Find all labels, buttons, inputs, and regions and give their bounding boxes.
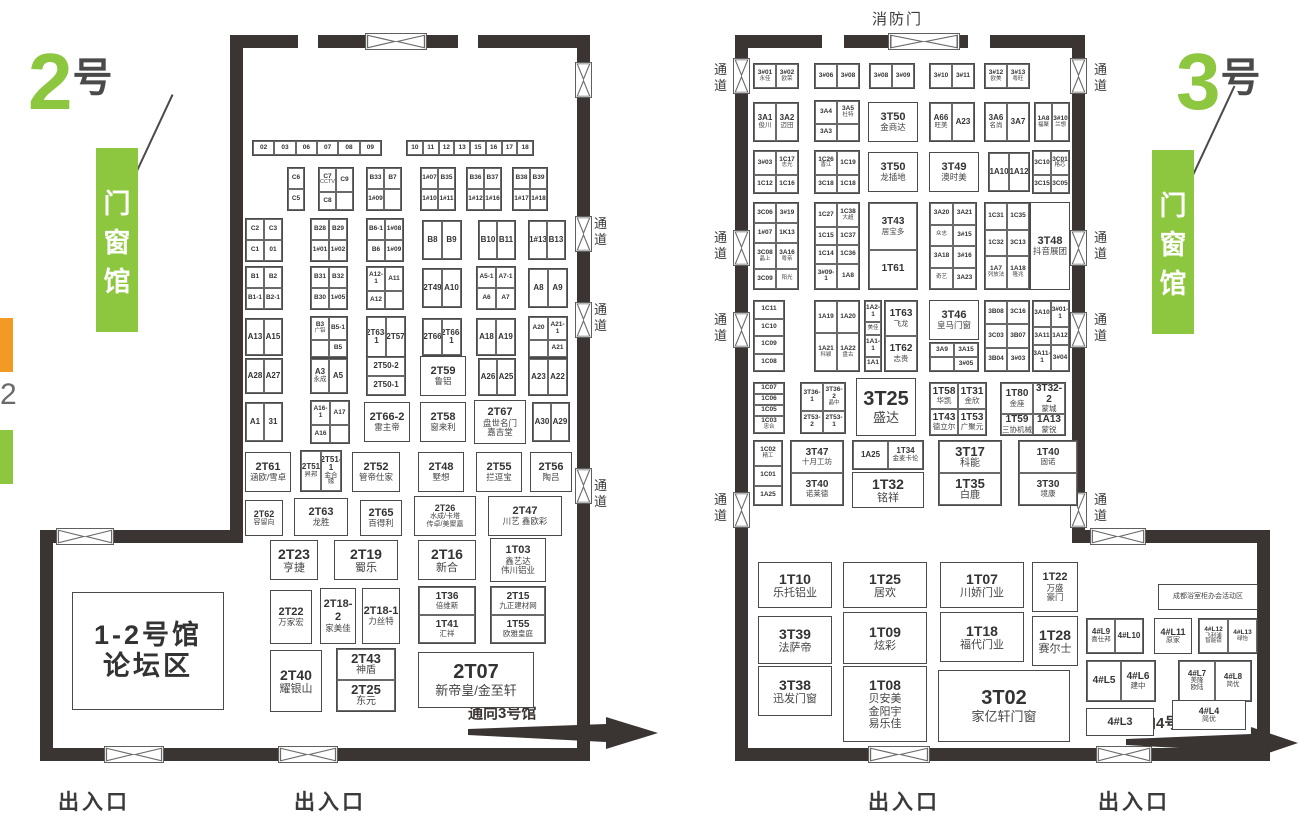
booth-cell: 2T53-1 [823,411,845,433]
booth-cell: B7 [384,168,401,189]
booth-3C06: 3C063#191#071K133C08晶上3A16粤亲3C09阳光 [753,202,799,290]
passage-label: 通 道 [1094,492,1108,523]
booth-cell: 3C10 [1033,151,1051,175]
door-symbol [1070,312,1087,348]
booth-cell: A10 [442,269,461,307]
booth-cell: 1C11 [754,301,784,319]
wall-segment [735,35,748,761]
booth-B28: B28B291#011#02 [310,218,348,262]
booth-B8: B8B9 [422,220,462,260]
booth-2T67: 2T67盘世名门 嘉吉堂 [474,400,526,444]
booth-cell [311,340,329,357]
booth-cell: 1C26香江 [815,151,837,175]
booth-cell: 3#01-1 [1051,301,1069,327]
booth-A30: A30A29 [532,402,570,442]
booth-1C26: 1C26香江1C193C181C18 [814,150,860,194]
booth-cell: 3C15 [1033,175,1051,193]
booth-2T19: 2T19蜀乐 [334,540,398,580]
booth-3C10: 3C103C01格芯3C153C05 [1032,150,1070,194]
wall-segment [577,35,590,760]
booth-area: 成都浴室柜办会活动区 [1158,584,1258,610]
booth-cell: 08 [338,141,359,155]
wall-segment [230,35,243,543]
booth-cell: 2T66-1 [442,319,461,355]
booth-B10: B10B11 [478,220,516,260]
booth-cell: 1A25 [754,486,782,505]
booth-3B08: 3B083C163C033B073B043#03 [984,300,1030,372]
booth-cell: 3A4 [815,101,837,124]
booth-cell: 18 [517,141,533,155]
booth-cell: 3T40诺莱德 [791,473,843,505]
booth-2T15: 2T15九正建材网1T55欧雅皇庭 [490,586,546,644]
booth-cell: 1A18隆兆 [1007,256,1029,289]
booth-cell: 3#09 [892,64,914,88]
booth-cell: 1#09 [385,240,403,261]
booth-cell: 3A7 [1007,103,1029,141]
booth-1#07: 1#07B351#101#11 [420,167,456,211]
booth-3T48: 3T48抖音展团 [1030,202,1070,290]
booth-cell: A22 [548,359,567,395]
booth-1T25: 1T25居欢 [843,562,927,608]
booth-cell: 1#11 [438,189,455,210]
booth-cell: A26 [479,359,497,395]
booth-1C02: 1C02精工1C011A25 [753,440,783,506]
passage-label: 通 道 [594,302,608,333]
booth-cell: 4#L9喜仕邦 [1087,619,1115,653]
booth-4#L12: 4#L12飞利浦 智能锁4#L13绿怡 [1198,618,1258,654]
booth-cell: 1C01 [754,466,782,485]
booth-cell: 1C31 [985,203,1007,230]
booth-2T62: 2T62容留向 [245,500,283,536]
booth-cell: 1T80金座 [1001,383,1033,414]
booth-2T65: 2T65百得利 [360,500,402,536]
booth-1T28: 1T28赛尔士 [1032,616,1078,666]
booth-cell: 3C16 [1007,301,1029,324]
booth-cell: 4#L10 [1115,619,1143,653]
booth-cell: B2 [264,267,282,288]
booth-cell: 09 [360,141,381,155]
booth-cell: 3T32-2蒙城 [1033,383,1065,414]
booth-B31: B31B32B301#05 [310,266,348,310]
booth-cell: 2T43神盾 [337,649,395,680]
booth-cell: A19 [496,319,515,355]
booth-cell: B8 [423,221,442,259]
booth-A13: A13A15 [245,318,283,356]
booth-cell: 3C01格芯 [1051,151,1069,175]
booth-cell: C3 [264,219,282,240]
hall2-suffix: 号 [73,56,113,100]
booth-2T66: 2T662T66-1 [422,318,462,356]
booth-2T40: 2T40耀银山 [270,650,322,712]
booth-cell: 1C35 [1007,203,1029,230]
door-symbol [888,33,960,50]
booth-4#L3: 4#L3 [1086,708,1154,736]
booth-cell: B33 [367,168,384,189]
booth-2T61: 2T61涵欧/雪卓 [245,452,291,492]
booth-cell: 3C18 [815,175,837,193]
booth-cell: 1A22盘古 [837,333,859,371]
booth-1C07: 1C071C061C051C03忠合 [753,382,785,434]
booth-1T09: 1T09炫彩 [843,612,927,664]
booth-A28: A28A27 [245,358,283,394]
booth-2T51: 2T51昇邦2T51-1金合缘 [300,450,342,492]
booth-cell: 03 [274,141,295,155]
booth-cell: 1#01 [311,240,329,261]
booth-cell: A15 [264,319,282,355]
booth-A66: A66旺美A23 [929,102,975,142]
booth-cell: 2T57 [386,317,405,357]
booth-cell: A5-1 [477,267,496,288]
booth-cell: 3C13 [1007,230,1029,257]
booth-cell: 1T36倍维斯 [419,587,475,615]
booth-cell: 1A13蒙锐 [1033,414,1065,435]
booth-cell: 1#18 [530,189,547,210]
booth-cell: 2T15九正建材网 [491,587,545,615]
booth-cell: C6 [288,168,304,189]
booth-1#13: 1#13B13 [528,220,566,260]
booth-cell: 15 [470,141,486,155]
booth-2T66-2: 2T66-2雷主帝 [364,402,410,442]
booth-cell: A13 [246,319,264,355]
booth-cell: 3A1俊川 [754,103,776,141]
booth-4#L11: 4#L11原家 [1154,618,1192,654]
booth-2T07: 2T07新帝皇/金至轩 [418,652,534,708]
booth-cell: C7CCTV [319,168,336,192]
door-symbol [1070,58,1087,94]
booth-3T43: 3T43居宝多1T61 [868,202,918,290]
booth-2T55: 2T55拦逗宝 [476,452,522,492]
booth-2T22: 2T22万家宏 [270,590,312,644]
booth-cell: A18 [477,319,496,355]
booth-cell: 4#L12飞利浦 智能锁 [1199,619,1228,653]
booth-cell: 3#04 [1051,345,1069,371]
wall-opening [298,35,318,48]
booth-1A25: 1A251T34金麦卡伦 [852,440,924,470]
booth-cell: 11 [423,141,439,155]
booth-cell: 1C09 [754,336,784,354]
booth-cell: 3#08 [837,64,859,88]
booth-cell: 3#19 [776,203,798,223]
booth-3A9: 3A93A153#05 [929,342,979,372]
booth-cell: B39 [530,168,547,189]
booth-cell: 3C03 [985,324,1007,347]
booth-A26: A26A25 [478,358,516,396]
booth-cell: A16 [311,425,330,443]
booth-cell: 1C07 [754,383,784,394]
booth-cell: A3永成 [311,359,329,393]
booth-cell: 3T30境康 [1019,473,1077,505]
exhibition-floorplan: 2号 门 窗 馆 3号 门 窗 馆 2 1-2号馆 论坛区 消防门出入口出入口出… [0,0,1299,835]
hall3-number: 3 [1176,37,1221,126]
booth-cell: 1T59三协机械 [1001,414,1033,435]
booth-cell: 3A21 [953,203,976,225]
booth-cell [837,124,859,141]
booth-cell: 1T35白鹿 [939,473,1001,505]
booth-cell: 02 [253,141,274,155]
booth-2T18-2: 2T18-2家美佳 [320,588,356,644]
booth-cell: A7-1 [496,267,515,288]
booth-cell: A12 [367,291,385,309]
edge-page-number: 2 [0,378,17,412]
booth-cell: 3#13粤旺 [1007,64,1029,88]
booth-cell: 4#L6建中 [1121,661,1155,701]
booth-1A19: 1A191A201A21科颖1A22盘古 [814,300,860,372]
door-symbol [1090,528,1146,545]
booth-B38: B38B391#171#18 [512,167,548,211]
booth-cell: 1T61 [869,250,917,289]
forum-area: 1-2号馆 论坛区 [72,592,224,710]
booth-cell: 2T63-1 [367,317,386,357]
booth-cell: 3A10 [1033,301,1051,327]
booth-cell: 06 [296,141,317,155]
booth-cell: A16-1 [311,401,330,425]
booth-cell: 4#L13绿怡 [1228,619,1257,653]
booth-cell: 1C03忠合 [754,416,784,433]
booth-cell: 1C38大超 [837,203,859,227]
edge-green-bar [0,430,13,484]
booth-3#12: 3#12欧美3#13粤旺 [984,63,1030,89]
booth-cell: 1C08 [754,354,784,372]
passage-label: 通 道 [1094,230,1108,261]
hall2-number: 2 [28,37,73,126]
booth-3#03: 3#031C17志光1C121C16 [753,150,799,194]
booth-cell: 16 [486,141,502,155]
booth-cell: 1C36 [837,245,859,263]
booth-cell: 1A19 [815,301,837,333]
booth-cell: B13 [547,221,565,259]
booth-cell: A23 [529,359,548,395]
booth-cell: 1C18 [837,175,859,193]
booth-cell: B5-1 [329,317,347,340]
booth-cell: 3C08晶上 [754,243,776,269]
booth-cell: 2T51昇邦 [301,451,321,491]
booth-cell: 1T53广聚元 [958,409,986,435]
booth-4#L4: 4#L4简优 [1172,700,1246,730]
booth-cell: 07 [317,141,338,155]
booth-cell: 3A20 [930,203,953,225]
booth-3T47: 3T47十月工坊3T40诺莱德 [790,440,844,506]
booth-cell: 1A25 [853,441,888,469]
booth-cell: B35 [438,168,455,189]
wall-opening [968,35,990,48]
booth-3T02: 3T02家亿轩门窗 [938,670,1070,742]
booth-cell: 1#17 [513,189,530,210]
booth-cell: 1#08 [385,219,403,240]
booth-B3: B3广铝B5-1B5 [310,316,348,358]
booth-1C27: 1C271C38大超1C151C371C141C363#09-11A8 [814,202,860,290]
booth-1C11: 1C111C101C091C08 [753,300,785,372]
passage-label: 通 道 [714,62,728,93]
booth-2T16: 2T16新合 [418,540,476,580]
door-symbol [733,230,750,266]
booth-cell: C8 [319,192,336,210]
booth-cell: 阳光 [776,269,798,289]
booth-02: 020306070809 [252,140,382,156]
booth-cell: 1C14 [815,245,837,263]
booth-cell: A20 [529,317,548,340]
booth-3A6: 3A6名尚3A7 [984,102,1030,142]
booth-cell: 3A11-1 [1033,345,1051,371]
door-symbol [104,746,164,763]
booth-cell: 3#06 [815,64,837,88]
booth-cell: 1C15 [815,227,837,245]
booth-2T50-2: 2T50-22T50-1 [366,356,406,396]
booth-cell: A11 [385,267,403,291]
booth-cell: B10 [479,221,497,259]
booth-cell: 1A2-1 [865,301,881,322]
booth-cell: 3A23 [953,268,976,290]
booth-B1: B1B2B1-1B2-1 [245,266,283,310]
booth-cell: 3#11 [952,64,974,88]
booth-3T25: 3T25盛达 [856,378,916,436]
booth-cell: 3A11 [1033,327,1051,346]
booth-cell: 3T36-2晶中 [823,383,845,411]
booth-cell: A7 [496,288,515,309]
door-symbol [575,468,592,504]
booth-cell: 4#L8简优 [1215,661,1251,701]
fire-door-label: 消防门 [872,8,923,29]
booth-cell: B9 [442,221,461,259]
booth-1T40: 1T40固诺3T30境康 [1018,440,1078,506]
booth-cell: 1T34金麦卡伦 [888,441,923,469]
booth-cell: 1C32 [985,230,1007,257]
booth-cell: 1C06 [754,394,784,405]
booth-cell: A21 [548,340,567,357]
wall-segment [40,530,53,760]
booth-cell: 1C10 [754,319,784,337]
booth-cell: B36 [467,168,484,189]
booth-cell: 2T50-2 [367,357,405,376]
booth-cell: 1C05 [754,405,784,416]
booth-3#10: 3#103#11 [929,63,975,89]
booth-cell: 3A6名尚 [985,103,1007,141]
door-symbol [365,33,427,50]
booth-cell: 3A3 [815,124,837,141]
booth-cell: 3A2迈田 [776,103,798,141]
booth-cell: 3#10 [930,64,952,88]
booth-cell [930,357,954,371]
booth-cell: 1A1-1 [865,335,881,356]
booth-2T18-1: 2T18-1力丝特 [362,588,400,644]
booth-cell: A23 [952,103,974,141]
booth-cell: 13 [454,141,470,155]
booth-3A10: 3A103#01-13A111A123A11-13#04 [1032,300,1070,372]
booth-C7: C7CCTVC9C8 [318,167,354,211]
booth-cell: A21-1 [548,317,567,340]
booth-cell: A66旺美 [930,103,952,141]
booth-cell: A8 [529,269,548,307]
booth-cell: B6 [367,240,385,261]
booth-2T47: 2T47川艺 鑫欧彩 [488,496,562,536]
door-symbol [575,216,592,252]
booth-cell: C5 [288,189,304,210]
booth-cell [385,291,403,309]
booth-3#08: 3#083#09 [869,63,915,89]
booth-cell: 1A8福聚 [1035,103,1052,141]
wall-opening [822,35,844,48]
booth-cell: 3T47十月工坊 [791,441,843,473]
booth-cell: 2T53-2 [801,411,823,433]
booth-cell: B28 [311,219,329,240]
booth-cell: 美佳 [865,322,881,335]
booth-10: 1011121315161718 [406,140,534,156]
booth-1A10: 1A101A12 [988,152,1030,192]
booth-cell: 3#08 [870,64,892,88]
booth-cell: A12-1 [367,267,385,291]
booth-A23: A23A22 [528,358,568,396]
booth-1T80: 1T80金座3T32-2蒙城1T59三协机械1A13蒙锐 [1000,382,1066,436]
booth-A20: A20A21-1A21 [528,316,568,358]
booth-cell: 3B08 [985,301,1007,324]
booth-cell: 3#12欧美 [985,64,1007,88]
booth-cell: C9 [336,168,353,192]
booth-cell: A6 [477,288,496,309]
booth-cell: 1T55欧雅皇庭 [491,615,545,643]
booth-cell: 1C16 [776,175,798,193]
booth-A12-1: A12-1A11A12 [366,266,404,310]
booth-cell: 1#10 [421,189,438,210]
booth-cell: 1A12 [1009,153,1029,191]
booth-cell: 3#15 [953,225,976,247]
booth-cell: A30 [533,403,551,441]
booth-2T43: 2T43神盾2T25东元 [336,648,396,712]
booth-A16-1: A16-1A17A16 [310,400,350,444]
booth-cell: 1T43德立尔 [930,409,958,435]
booth-cell: 1A12 [1051,327,1069,346]
booth-cell: 3C09 [754,269,776,289]
door-symbol [733,312,750,348]
booth-C6: C6C5 [287,167,305,211]
booth-cell: 1T58华凯 [930,383,958,409]
booth-3A20: 3A203A21众志3#153A183#16奇艺3A23 [929,202,977,290]
booth-cell: 3A16粤亲 [776,243,798,269]
booth-C2: C2C3C101 [245,218,283,262]
booth-cell: 1#02 [329,240,347,261]
booth-cell [384,189,401,210]
booth-cell: 1T31金欣 [958,383,986,409]
passage-label: 通 道 [714,492,728,523]
booth-3A1: 3A1俊川3A2迈田 [753,102,799,142]
booth-1T08: 1T08贝安美 金阳宇 易乐佳 [843,666,927,742]
booth-1T36: 1T36倍维斯1T41汇祥 [418,586,476,644]
booth-cell [529,340,548,357]
booth-3A4: 3A43A5杜特3A3 [814,100,860,142]
booth-3T50: 3T50龙插地 [868,152,918,192]
hall3-title: 3号 [1176,42,1261,122]
booth-1A8: 1A8福聚3#10兰想 [1034,102,1070,142]
booth-cell: 3#10兰想 [1052,103,1069,141]
passage-label: 通 道 [1094,312,1108,343]
booth-cell: 10 [407,141,423,155]
booth-cell: 1A20 [837,301,859,333]
booth-cell [330,425,349,443]
door-symbol [278,746,338,763]
booth-cell: B31 [311,267,329,288]
booth-cell: 2T50-1 [367,376,405,395]
booth-cell: 1C12 [754,175,776,193]
booth-cell: 3A18 [930,246,953,268]
booth-cell: B11 [497,221,515,259]
booth-cell: 1T62志贵 [885,336,917,371]
booth-cell: 1A1 [865,357,881,371]
booth-cell: A5 [329,359,347,393]
booth-cell: 众志 [930,225,953,247]
booth-2T49: 2T49A10 [422,268,462,308]
booth-3T50: 3T50金商达 [868,102,918,142]
booth-cell: B6-1 [367,219,385,240]
booth-3T17: 3T17科能1T35白鹿 [938,440,1002,506]
booth-cell: 1C27 [815,203,837,227]
